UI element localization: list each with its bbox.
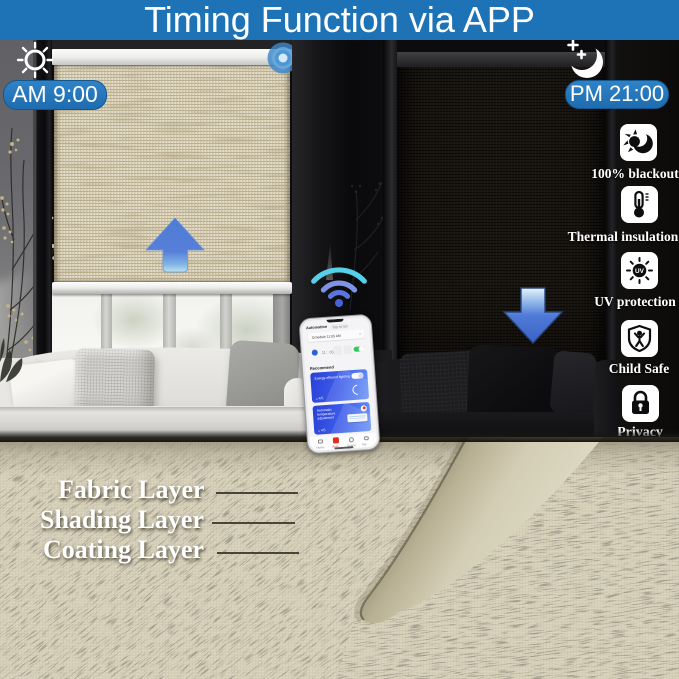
svg-text:UV: UV	[635, 268, 645, 275]
